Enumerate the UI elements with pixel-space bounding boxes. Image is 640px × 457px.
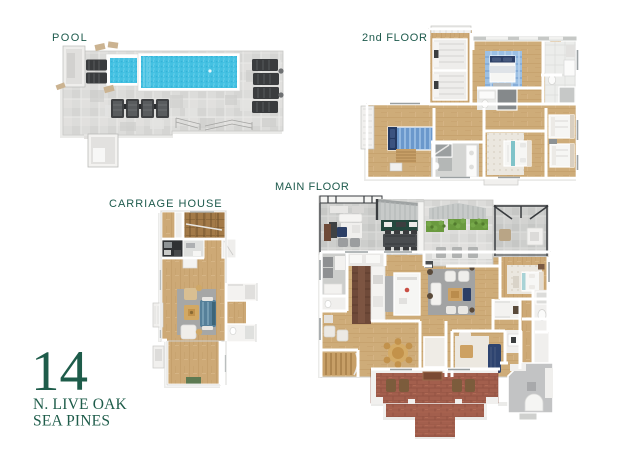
svg-text:MAIN FLOOR: MAIN FLOOR bbox=[275, 181, 349, 193]
svg-text:CARRIAGE HOUSE: CARRIAGE HOUSE bbox=[109, 198, 223, 210]
svg-text:N. LIVE OAK: N. LIVE OAK bbox=[33, 396, 127, 413]
svg-text:14: 14 bbox=[31, 340, 88, 403]
svg-text:SEA PINES: SEA PINES bbox=[33, 413, 110, 430]
svg-text:POOL: POOL bbox=[52, 32, 88, 44]
svg-text:2nd FLOOR: 2nd FLOOR bbox=[362, 32, 428, 44]
